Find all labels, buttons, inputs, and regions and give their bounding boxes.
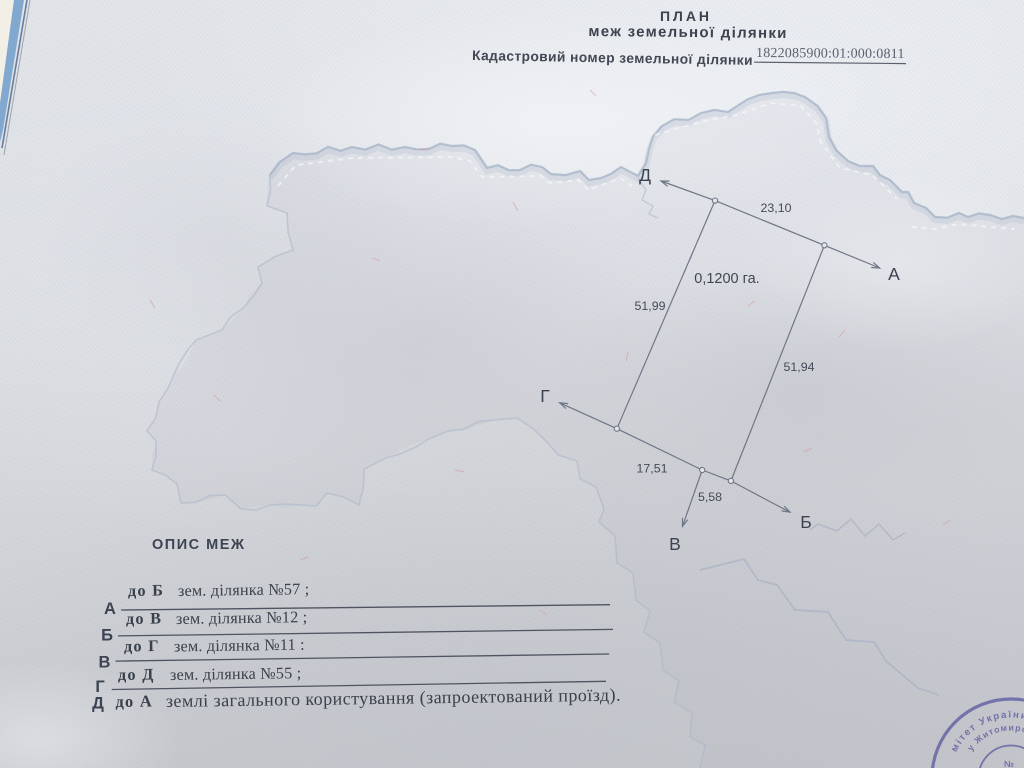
svg-text:Б: Б bbox=[800, 512, 811, 532]
svg-text:Д: Д bbox=[92, 695, 104, 713]
svg-text:А: А bbox=[888, 264, 900, 284]
svg-text:Б: Б bbox=[101, 626, 113, 644]
svg-text:меж земельної ділянки: меж земельної ділянки bbox=[588, 23, 787, 42]
svg-text:1822085900:01:000:0811: 1822085900:01:000:0811 bbox=[756, 46, 905, 62]
svg-text:51,94: 51,94 bbox=[783, 360, 814, 374]
svg-text:№: № bbox=[1004, 759, 1014, 768]
svg-text:до А: до А bbox=[115, 691, 153, 711]
svg-text:51,99: 51,99 bbox=[634, 299, 665, 313]
svg-text:А: А bbox=[104, 600, 116, 618]
svg-text:зем. ділянка №57 ;: зем. ділянка №57 ; bbox=[178, 580, 310, 600]
svg-text:17,51: 17,51 bbox=[636, 462, 667, 476]
svg-text:5,58: 5,58 bbox=[698, 490, 722, 504]
svg-text:до В: до В bbox=[126, 609, 163, 628]
svg-text:зем. ділянка №12 ;: зем. ділянка №12 ; bbox=[176, 608, 308, 628]
svg-text:23,10: 23,10 bbox=[760, 201, 791, 215]
svg-text:Г: Г bbox=[540, 386, 550, 406]
svg-text:ОПИС МЕЖ: ОПИС МЕЖ bbox=[152, 537, 245, 553]
svg-text:зем. ділянка №11 :: зем. ділянка №11 : bbox=[174, 636, 305, 656]
svg-text:до Г: до Г bbox=[124, 637, 160, 655]
svg-text:ПЛАН: ПЛАН bbox=[660, 8, 712, 24]
svg-text:Г: Г bbox=[95, 678, 105, 696]
svg-text:Д: Д bbox=[639, 165, 651, 185]
svg-text:0,1200 га.: 0,1200 га. bbox=[694, 271, 759, 287]
svg-text:до Б: до Б bbox=[128, 581, 164, 600]
svg-text:В: В bbox=[669, 534, 681, 554]
svg-text:до Д: до Д bbox=[118, 665, 155, 684]
svg-text:В: В bbox=[99, 654, 111, 672]
svg-text:зем. ділянка №55 ;: зем. ділянка №55 ; bbox=[170, 664, 302, 684]
